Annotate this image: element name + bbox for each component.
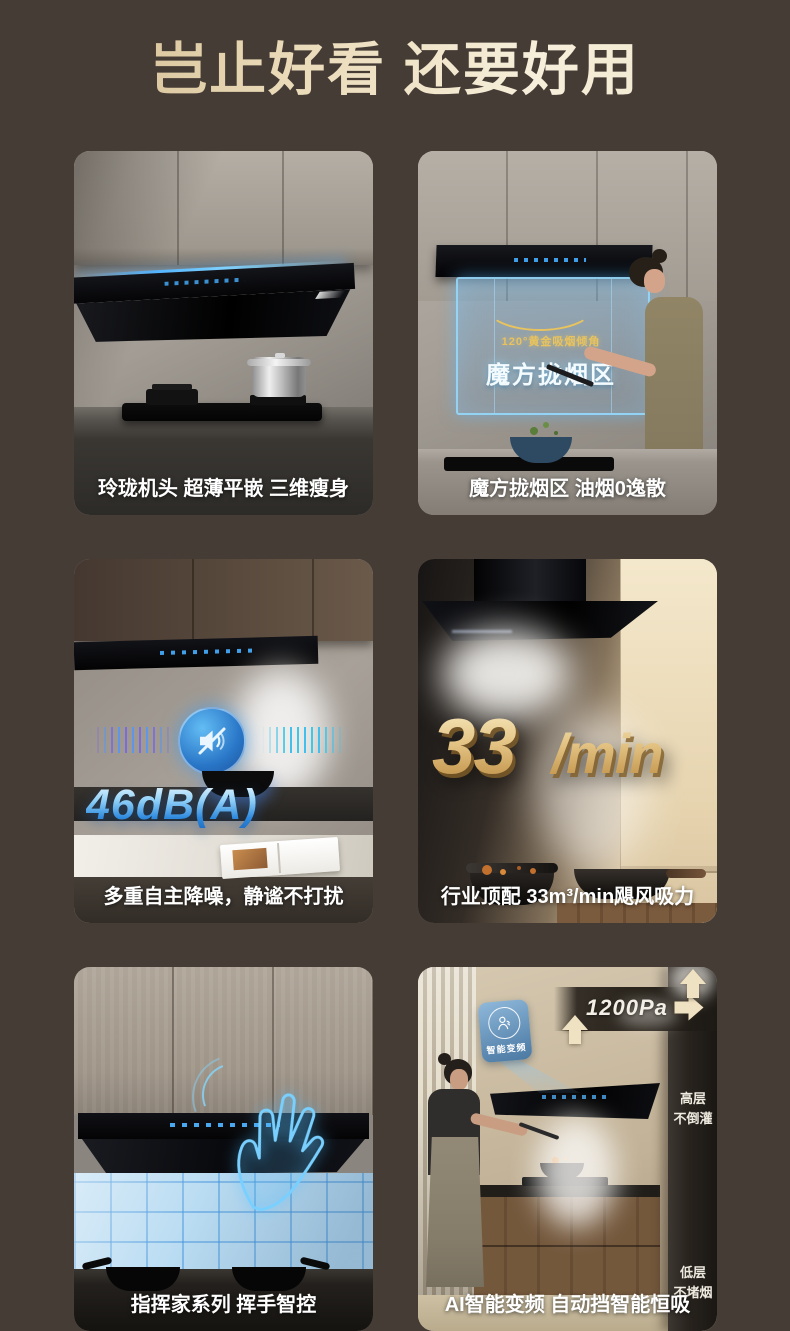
page-title: 岂止好看 还要好用 [0, 24, 790, 106]
range-hood [74, 259, 373, 359]
flow-unit: /min [551, 722, 662, 785]
suction-angle-label: 120°黄金吸烟倾角 [456, 333, 646, 349]
pressure-value: 1200Pa [586, 995, 668, 1021]
gold-angle-arc [486, 283, 594, 331]
left-burner [146, 389, 198, 405]
woman-face [450, 1069, 468, 1090]
feature-caption: 玲珑机头 超薄平嵌 三维瘦身 [74, 472, 373, 501]
feature-caption: 魔方拢烟区 油烟0逸散 [418, 472, 717, 501]
feature-card-suction: 33m³/min 行业顶配 33m³/min飓风吸力 [418, 559, 717, 923]
tossed-vegetables [530, 427, 538, 435]
arrow-right-icon [675, 995, 704, 1021]
duct-top-label: 高层 不倒灌 [670, 1089, 716, 1129]
feature-caption: 行业顶配 33m³/min飓风吸力 [418, 880, 717, 909]
product-detail-section: { "title": "岂止好看 还要好用", "colors": { "pag… [0, 0, 790, 1325]
person-breath-icon [487, 1006, 522, 1041]
sound-waveform-left [90, 727, 176, 753]
feature-caption: AI智能变频 自动挡智能恒吸 [418, 1288, 717, 1317]
food-in-pot [482, 865, 492, 875]
mute-speaker-icon [178, 707, 246, 775]
feature-card-ai-frequency: 1200Pa 高层 不倒灌 低层 不堵烟 智能变频 AI智能变频 自动挡智能恒吸 [418, 967, 717, 1331]
upper-cabinets [74, 559, 373, 641]
arrow-up-icon [562, 1015, 588, 1044]
arrow-up-icon [680, 969, 706, 998]
hand-outline-icon [211, 1062, 342, 1211]
noise-level-value: 46dB(A) [86, 781, 258, 830]
badge-label: 智能变频 [486, 1040, 527, 1056]
frequency-badge: 智能变频 [477, 999, 532, 1063]
feature-card-slim-hood: 玲珑机头 超薄平嵌 三维瘦身 [74, 151, 373, 515]
sound-waveform-right [262, 727, 348, 753]
feature-grid: 玲珑机头 超薄平嵌 三维瘦身 120°黄金吸烟倾角 魔方拢烟区 魔方拢烟区 油烟… [74, 151, 717, 1331]
steel-pot [252, 357, 306, 397]
feature-caption: 指挥家系列 挥手智控 [74, 1288, 373, 1317]
feature-card-cube-zone: 120°黄金吸烟倾角 魔方拢烟区 魔方拢烟区 油烟0逸散 [418, 151, 717, 515]
flow-number: 33 [432, 702, 515, 790]
hood-chimney [474, 559, 586, 603]
feature-caption: 多重自主降噪，静谧不打扰 [74, 880, 373, 909]
woman-apron [426, 1137, 484, 1287]
gas-hob [122, 403, 322, 421]
feature-card-gesture: 指挥家系列 挥手智控 [74, 967, 373, 1331]
woman-face [644, 269, 665, 293]
airflow-value: 33m³/min [432, 701, 663, 792]
range-hood [435, 245, 652, 277]
flow-unit-sup: m³ [515, 699, 552, 732]
feature-card-low-noise: 46dB(A) 多重自主降噪，静谧不打扰 [74, 559, 373, 923]
